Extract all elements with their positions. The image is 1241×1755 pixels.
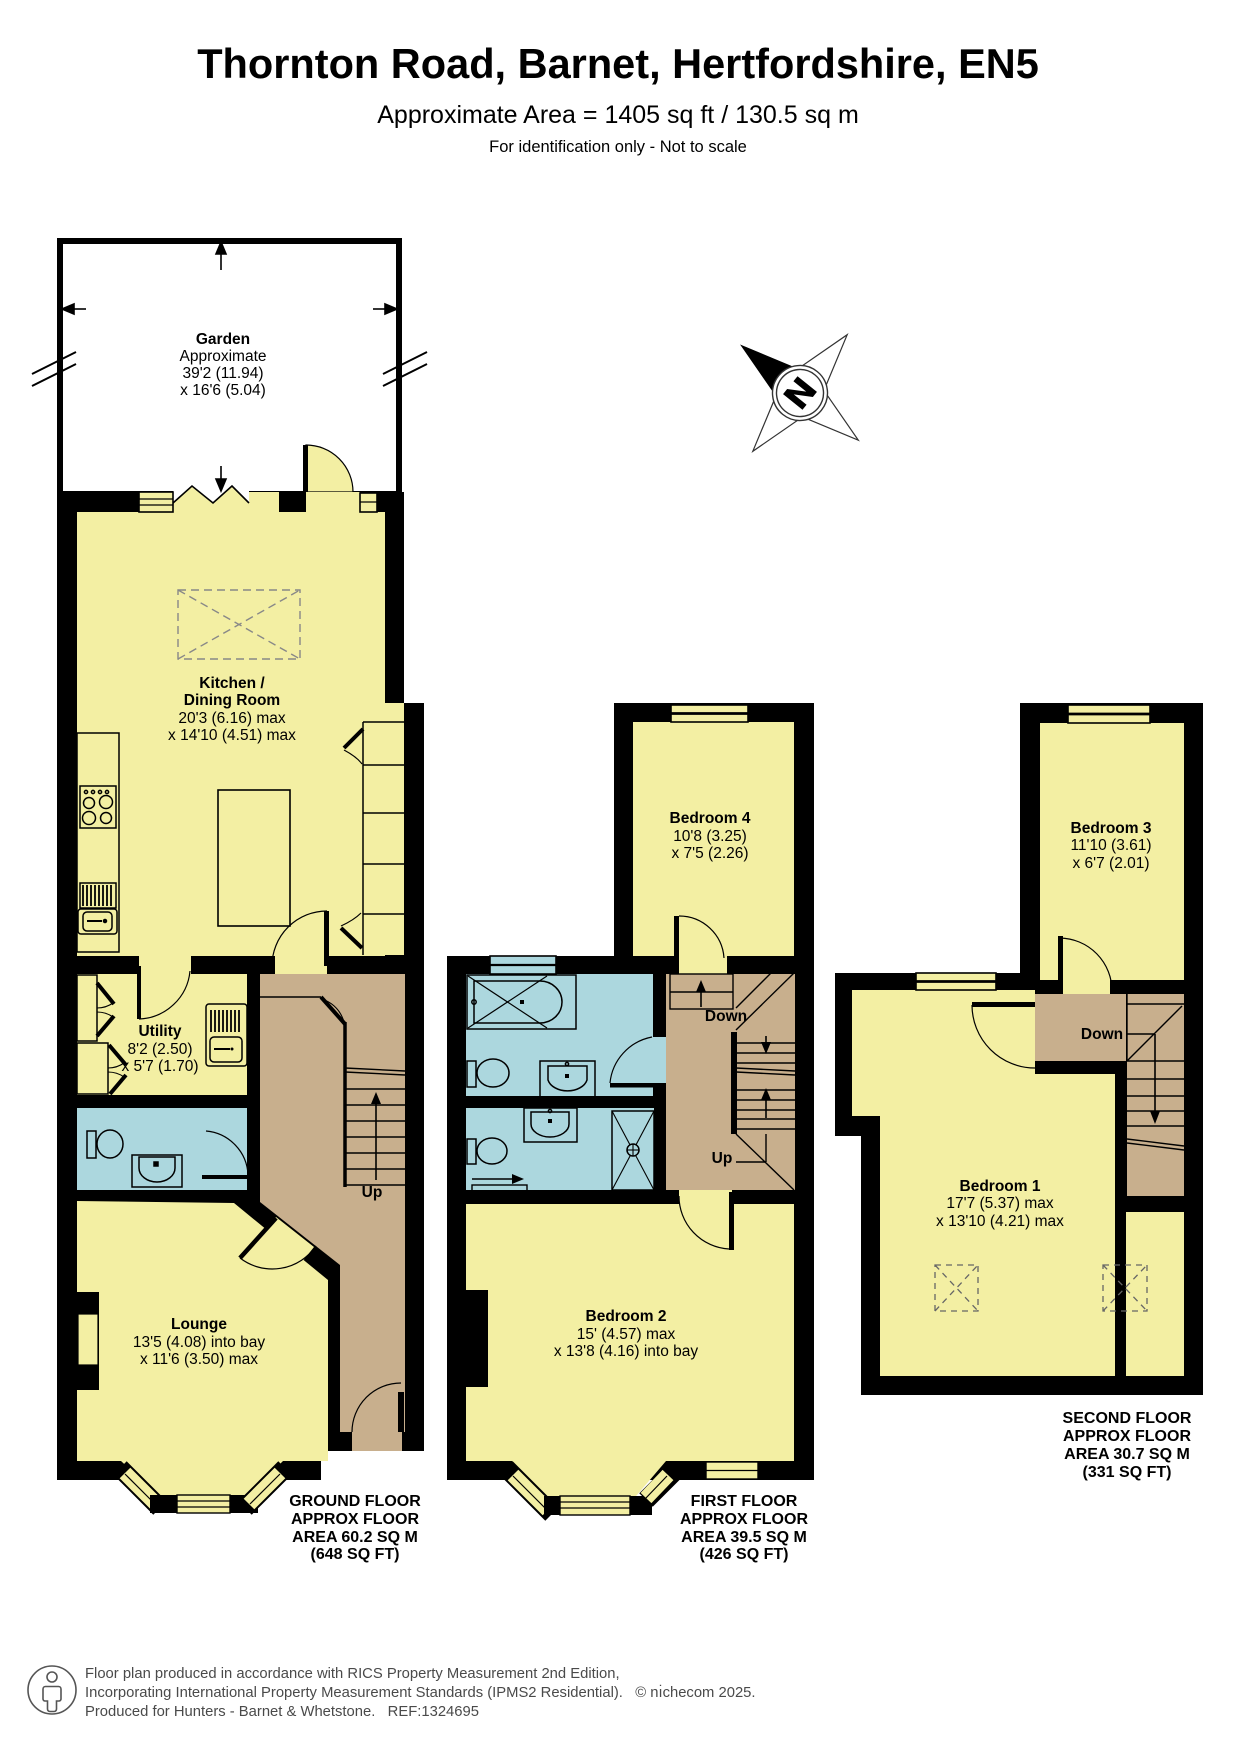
svg-text:Thornton Road, Barnet, Hertfor: Thornton Road, Barnet, Hertfordshire, EN… [197, 40, 1039, 87]
svg-text:Garden: Garden [196, 331, 250, 348]
svg-text:For identification only - Not: For identification only - Not to scale [489, 138, 747, 156]
svg-text:Dining Room: Dining Room [184, 692, 280, 709]
svg-text:Approximate Area = 1405 sq ft: Approximate Area = 1405 sq ft / 130.5 sq… [377, 101, 859, 129]
svg-text:Incorporating International Pr: Incorporating International Property Mea… [85, 1684, 756, 1701]
svg-text:APPROX FLOOR: APPROX FLOOR [291, 1511, 419, 1528]
svg-text:Up: Up [712, 1150, 733, 1167]
svg-text:17'7 (5.37) max: 17'7 (5.37) max [946, 1195, 1053, 1212]
svg-text:x 13'8 (4.16) into bay: x 13'8 (4.16) into bay [554, 1343, 699, 1360]
svg-text:Bedroom 2: Bedroom 2 [586, 1308, 667, 1325]
svg-text:Kitchen /: Kitchen / [199, 675, 265, 692]
svg-text:GROUND FLOOR: GROUND FLOOR [289, 1493, 421, 1510]
svg-text:SECOND FLOOR: SECOND FLOOR [1063, 1410, 1192, 1427]
svg-text:AREA 30.7 SQ M: AREA 30.7 SQ M [1064, 1446, 1190, 1463]
svg-text:39'2 (11.94): 39'2 (11.94) [182, 365, 263, 382]
svg-text:Floor plan produced in accorda: Floor plan produced in accordance with R… [85, 1666, 620, 1682]
svg-text:10'8 (3.25): 10'8 (3.25) [673, 828, 747, 845]
svg-text:Bedroom 3: Bedroom 3 [1071, 820, 1152, 837]
svg-text:x 14'10 (4.51) max: x 14'10 (4.51) max [168, 727, 296, 744]
svg-text:Approximate: Approximate [179, 348, 266, 365]
svg-text:AREA 39.5 SQ M: AREA 39.5 SQ M [681, 1529, 807, 1546]
svg-text:x 6'7 (2.01): x 6'7 (2.01) [1072, 855, 1149, 872]
svg-text:20'3 (6.16) max: 20'3 (6.16) max [178, 710, 285, 727]
svg-text:x 7'5 (2.26): x 7'5 (2.26) [671, 845, 748, 862]
svg-text:Bedroom 1: Bedroom 1 [960, 1178, 1041, 1195]
svg-text:13'5 (4.08) into bay: 13'5 (4.08) into bay [133, 1334, 265, 1351]
svg-text:Lounge: Lounge [171, 1316, 227, 1333]
svg-text:(426 SQ FT): (426 SQ FT) [700, 1546, 789, 1563]
svg-text:Down: Down [1081, 1026, 1123, 1043]
svg-text:APPROX FLOOR: APPROX FLOOR [1063, 1428, 1191, 1445]
svg-text:x 5'7 (1.70): x 5'7 (1.70) [121, 1058, 198, 1075]
svg-text:15' (4.57) max: 15' (4.57) max [577, 1326, 676, 1343]
svg-text:Utility: Utility [138, 1023, 181, 1040]
svg-text:Bedroom 4: Bedroom 4 [670, 810, 751, 827]
svg-text:(648 SQ FT): (648 SQ FT) [311, 1546, 400, 1563]
svg-text:x 13'10 (4.21) max: x 13'10 (4.21) max [936, 1213, 1064, 1230]
svg-text:11'10 (3.61): 11'10 (3.61) [1070, 837, 1151, 854]
svg-text:x 16'6 (5.04): x 16'6 (5.04) [180, 382, 266, 399]
svg-text:AREA 60.2 SQ M: AREA 60.2 SQ M [292, 1529, 418, 1546]
svg-text:APPROX FLOOR: APPROX FLOOR [680, 1511, 808, 1528]
svg-text:Down: Down [705, 1008, 747, 1025]
svg-text:(331 SQ FT): (331 SQ FT) [1083, 1464, 1172, 1481]
svg-text:Up: Up [362, 1184, 383, 1201]
svg-text:8'2 (2.50): 8'2 (2.50) [128, 1041, 193, 1058]
svg-text:FIRST FLOOR: FIRST FLOOR [691, 1493, 798, 1510]
svg-text:Produced for Hunters - Barnet: Produced for Hunters - Barnet & Whetston… [85, 1704, 479, 1720]
svg-text:x 11'6 (3.50) max: x 11'6 (3.50) max [140, 1351, 258, 1368]
